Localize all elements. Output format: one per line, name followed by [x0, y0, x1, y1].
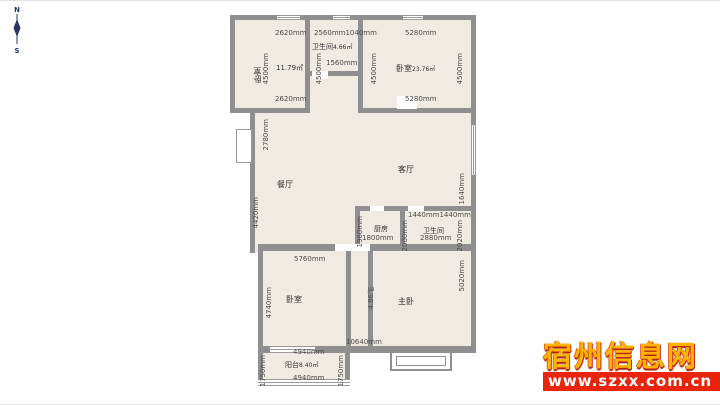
area-hallway: 4.86㎡: [368, 287, 375, 310]
bay-window-master-inner: [396, 356, 446, 366]
dim-bedroom-bl-top: 5760mm: [294, 256, 325, 263]
dim-kitchen-right: 2000mm: [402, 220, 409, 251]
window-bedroom-tl-top: [277, 15, 300, 20]
dim-bath-top-right: 1040mm: [345, 29, 376, 37]
wall-bedroom-tr-bottom: [358, 108, 476, 113]
dim-bath-top: 2560mm1040mm: [314, 30, 377, 37]
dim-hallway-bottom: 10640mm: [346, 339, 382, 346]
dim-bedroom-tl-top: 2620mm: [275, 30, 306, 37]
dim-bedroom-bl-left: 4740mm: [266, 287, 273, 318]
dim-bath-mid-top: 1440mm1440mm: [408, 212, 471, 219]
dim-bath-mid-right: 2020mm: [457, 220, 464, 251]
dim-bedroom-tr-bottom: 5280mm: [405, 96, 436, 103]
wall-left-upper: [230, 15, 235, 113]
wall-top: [230, 15, 476, 20]
wall-bedroom-tl-bottom: [230, 108, 310, 113]
room-label-bedroom-tl: 卧室: [254, 67, 262, 83]
dim-bedroom-tl-left: 4500mm: [263, 53, 270, 84]
dim-kitchen-bottom: 1800mm: [362, 235, 393, 242]
dim-balcony-bottom: 4940mm: [293, 375, 324, 382]
room-label-bath-top: 卫生间4.66㎡: [312, 44, 352, 51]
watermark-site-name: 宿州信息网: [543, 342, 720, 371]
window-bedroom-tr-top: [403, 15, 423, 20]
compass-north-label: N: [10, 7, 24, 14]
dim-bedroom-tl-bottom: 2620mm: [275, 96, 306, 103]
watermark-url: www.szxx.com.cn: [543, 372, 720, 391]
area-bedroom-tl: 11.79㎡: [276, 65, 303, 72]
dim-balcony-top: 4940mm: [293, 349, 324, 356]
dim-kitchen-left: 1960mm: [357, 216, 364, 247]
room-label-dining: 餐厅: [277, 181, 293, 189]
dim-bath-top-inner: 1560mm: [326, 60, 357, 67]
room-label-bedroom-tr: 卧室23.76㎡: [396, 65, 435, 73]
floor-plan: 2620mm 2620mm 4500mm 卧室 11.79㎡ 4500mm 25…: [230, 15, 478, 395]
dim-master-right: 5020mm: [459, 260, 466, 291]
dim-balcony-left: 1750mm: [260, 355, 267, 386]
dim-dining-lower-left: 4420mm: [253, 197, 260, 228]
door-bedroom-bl: [335, 244, 348, 251]
room-label-bedroom-bl: 卧室: [286, 296, 302, 304]
door-kitchen: [370, 206, 384, 211]
dim-bedroom-tr-left: 4500mm: [371, 53, 378, 84]
compass-arrow-icon: [11, 14, 23, 44]
window-dining-left-bay: [236, 129, 252, 163]
compass-south-label: S: [10, 48, 24, 55]
dim-bedroom-tl-right: 4500mm: [316, 53, 323, 84]
dim-bath-top-left: 2560mm: [314, 29, 345, 37]
room-label-kitchen: 厨房: [374, 226, 388, 233]
dim-balcony-right: 1750mm: [338, 355, 345, 386]
dim-bedroom-tr-top: 5280mm: [405, 30, 436, 37]
room-label-balcony: 阳台8.40㎡: [285, 362, 318, 369]
window-bath-top: [333, 15, 350, 20]
area-bedroom-tr: 23.76㎡: [412, 66, 435, 73]
area-balcony: 8.40㎡: [299, 362, 318, 369]
wall-hallway-left: [346, 251, 351, 346]
window-living-right: [471, 125, 476, 175]
dim-bedroom-tr-right: 4500mm: [457, 53, 464, 84]
wall-right: [471, 15, 476, 353]
dim-bath-mid-bottom: 2880mm: [420, 235, 451, 242]
dim-bath-mid-top-right: 1440mm: [439, 211, 470, 219]
compass: N S: [10, 7, 24, 55]
dim-living-right: 1640mm: [459, 173, 466, 204]
dim-bath-mid-top-left: 1440mm: [408, 211, 439, 219]
area-bath-top: 4.66㎡: [333, 44, 352, 51]
room-label-master: 主卧: [398, 298, 414, 306]
watermark: 宿州信息网 www.szxx.com.cn: [543, 342, 720, 391]
dim-dining-upper-left: 2780mm: [263, 119, 270, 150]
room-label-living: 客厅: [398, 166, 414, 174]
